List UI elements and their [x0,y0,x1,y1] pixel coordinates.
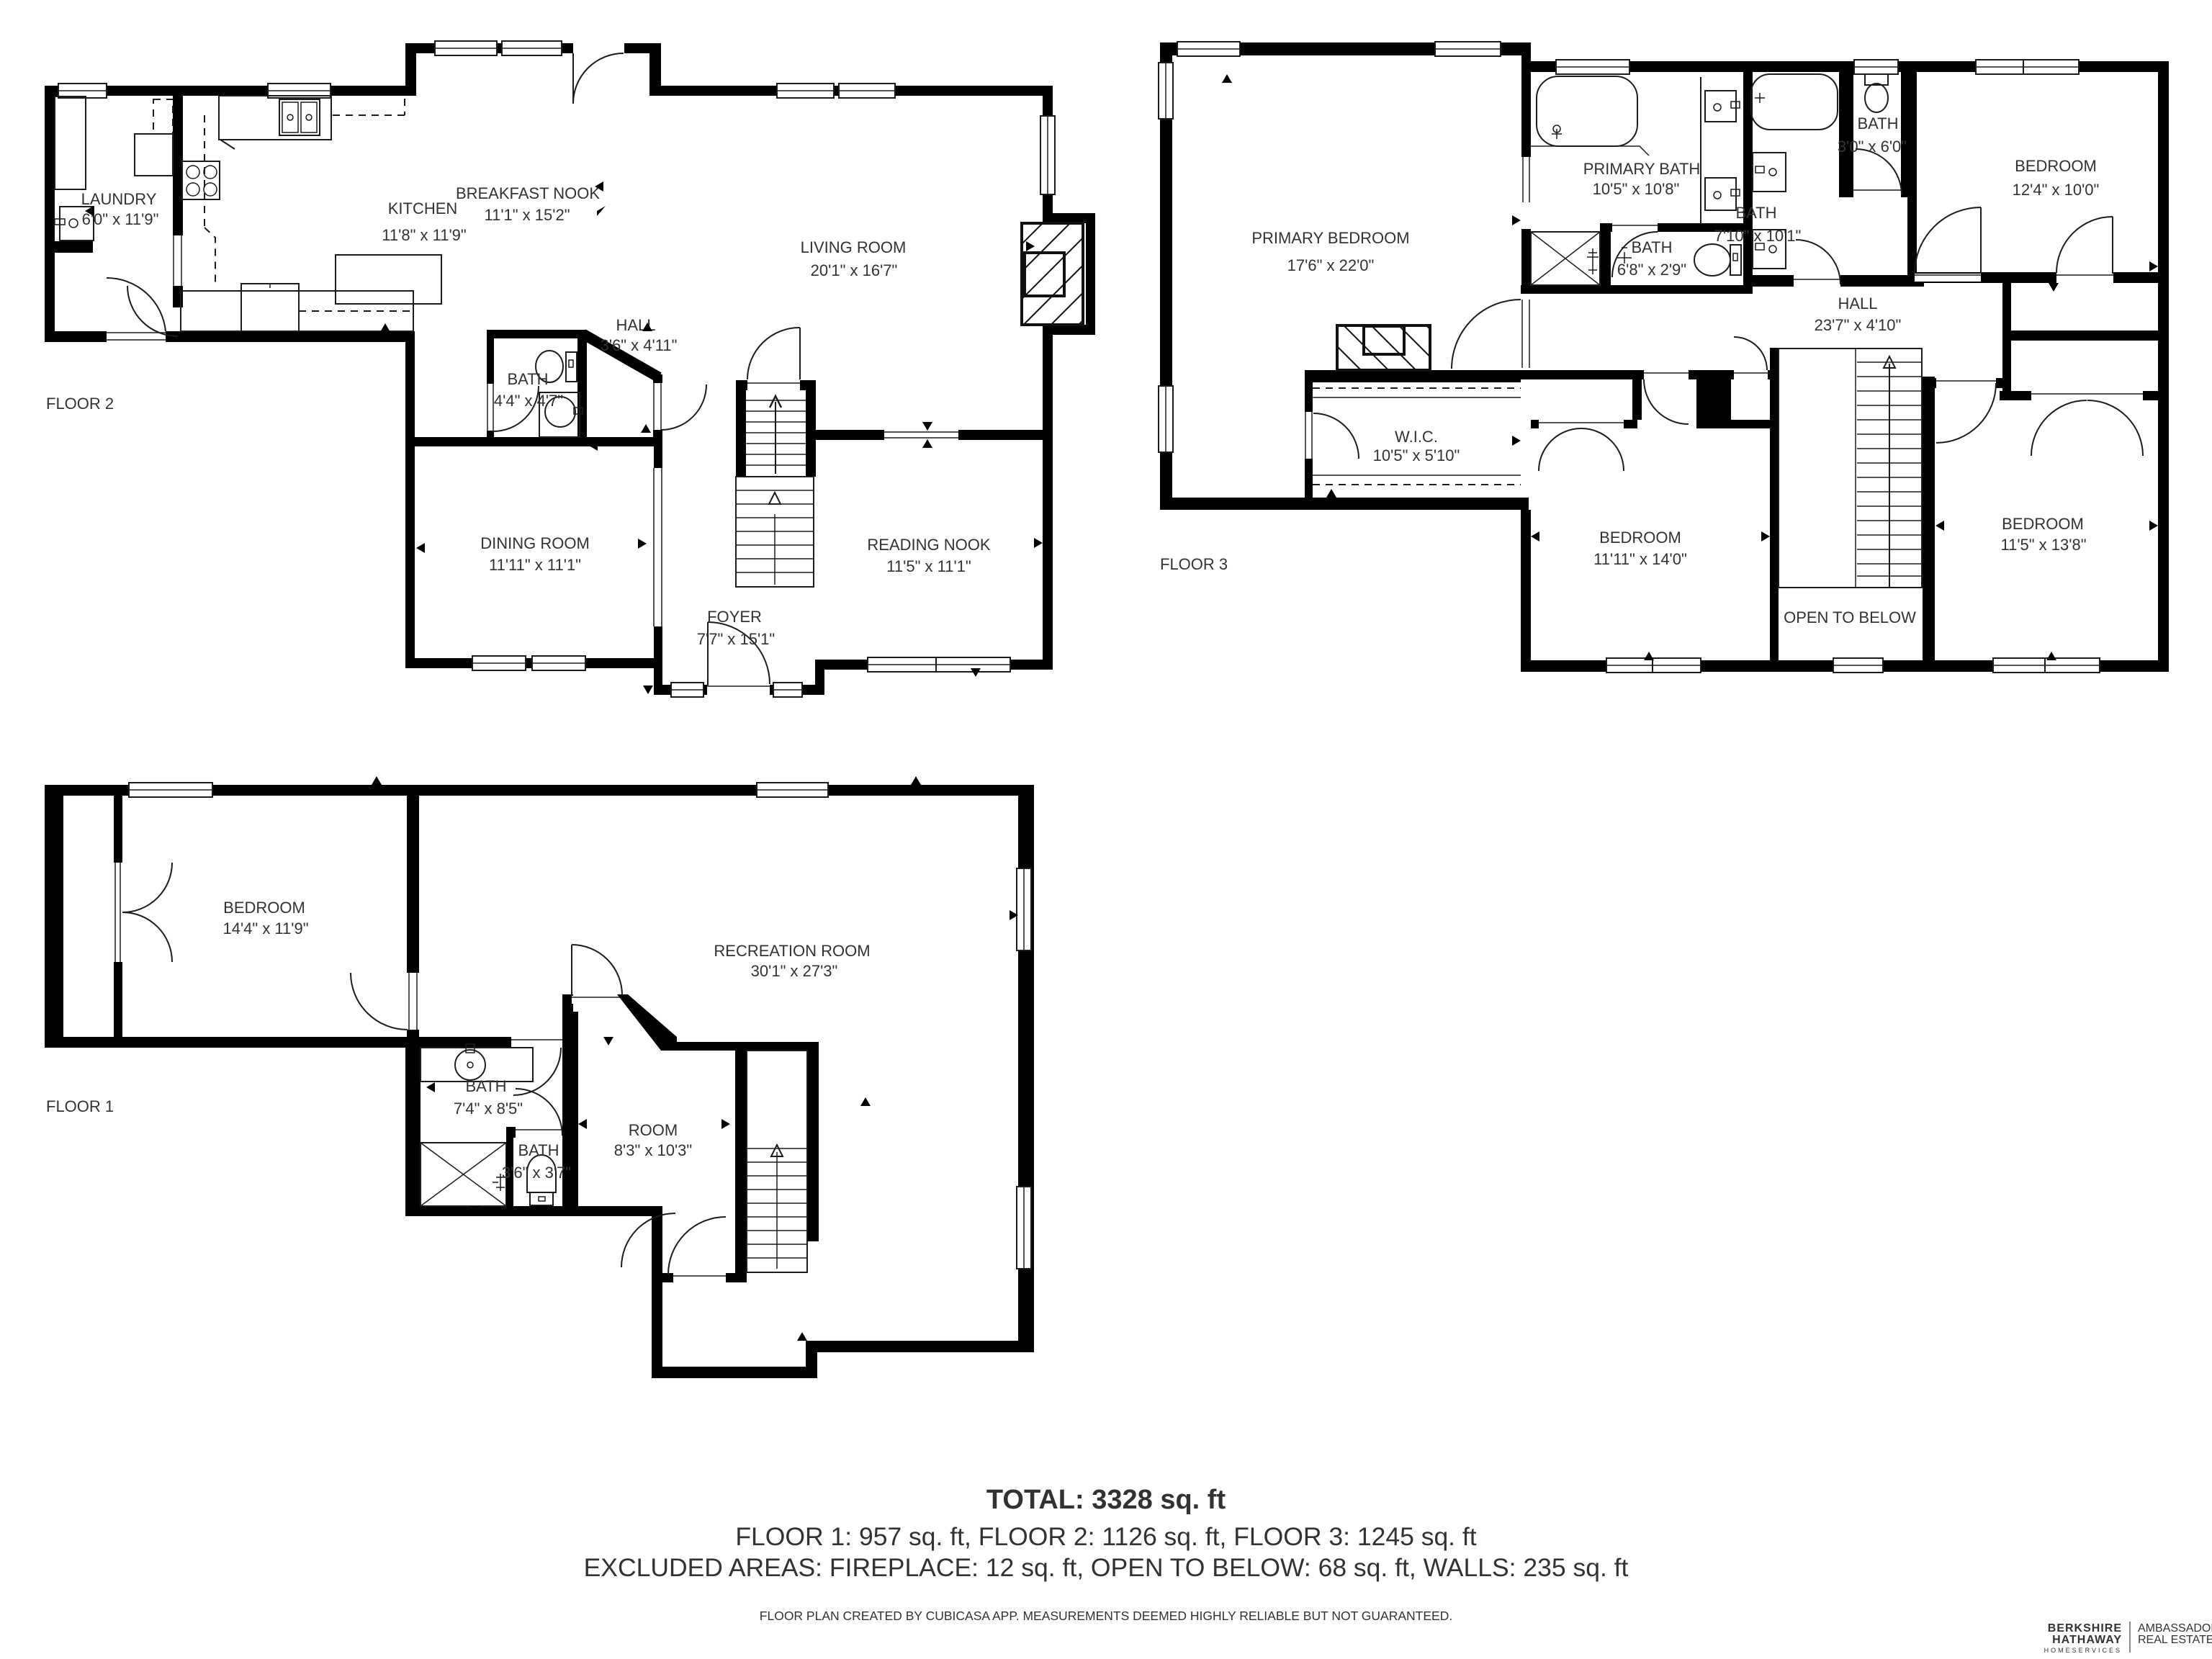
svg-text:3'6" x 4'11": 3'6" x 4'11" [601,336,678,354]
svg-text:PRIMARY BEDROOM: PRIMARY BEDROOM [1251,229,1409,247]
svg-text:BREAKFAST NOOK: BREAKFAST NOOK [456,184,600,202]
svg-text:11'5" x 11'1": 11'5" x 11'1" [886,557,971,575]
svg-text:FLOOR 1: FLOOR 1 [46,1097,114,1115]
svg-text:RECREATION ROOM: RECREATION ROOM [714,942,870,960]
svg-text:3'0" x 6'0": 3'0" x 6'0" [1838,138,1907,156]
svg-text:FLOOR PLAN CREATED BY CUBICASA: FLOOR PLAN CREATED BY CUBICASA APP. MEAS… [760,1609,1452,1623]
svg-text:23'7" x 4'10": 23'7" x 4'10" [1815,316,1902,334]
svg-text:BATH: BATH [465,1077,506,1095]
svg-text:11'11" x 14'0": 11'11" x 14'0" [1593,550,1687,568]
svg-text:20'1" x 16'7": 20'1" x 16'7" [811,261,898,279]
svg-text:7'7" x 15'1": 7'7" x 15'1" [697,630,775,648]
svg-text:HATHAWAY: HATHAWAY [2052,1634,2122,1646]
svg-text:BATH: BATH [507,370,548,388]
svg-text:HOMESERVICES: HOMESERVICES [2044,1647,2122,1654]
svg-text:W.I.C.: W.I.C. [1395,428,1438,446]
svg-text:BEDROOM: BEDROOM [2002,515,2084,533]
svg-text:7'4" x 8'5": 7'4" x 8'5" [454,1100,523,1118]
svg-text:3'6" x 3'7": 3'6" x 3'7" [502,1164,571,1182]
svg-text:LAUNDRY: LAUNDRY [81,190,157,208]
svg-text:10'5" x 10'8": 10'5" x 10'8" [1593,180,1680,198]
svg-text:BATH: BATH [1735,204,1776,222]
svg-text:BATH: BATH [1857,114,1898,132]
svg-text:AMBASSADOR: AMBASSADOR [2138,1622,2212,1635]
svg-text:11'11" x 11'1": 11'11" x 11'1" [489,556,581,574]
svg-text:REAL ESTATE: REAL ESTATE [2138,1634,2212,1646]
svg-text:BEDROOM: BEDROOM [2015,157,2097,175]
svg-text:HALL: HALL [1838,295,1877,313]
svg-text:TOTAL: 3328 sq. ft: TOTAL: 3328 sq. ft [986,1485,1226,1515]
svg-text:KITCHEN: KITCHEN [388,199,458,217]
svg-text:EXCLUDED AREAS: FIREPLACE: 12: EXCLUDED AREAS: FIREPLACE: 12 sq. ft, OP… [584,1553,1629,1582]
svg-text:OPEN TO BELOW: OPEN TO BELOW [1784,608,1916,626]
svg-text:ROOM: ROOM [629,1121,678,1139]
svg-text:17'6" x 22'0": 17'6" x 22'0" [1287,256,1375,274]
svg-text:BEDROOM: BEDROOM [223,899,305,917]
svg-text:4'4" x 4'7": 4'4" x 4'7" [494,392,563,410]
svg-text:BATH: BATH [1631,238,1672,256]
svg-text:LIVING ROOM: LIVING ROOM [801,238,907,256]
svg-text:BEDROOM: BEDROOM [1599,529,1681,547]
svg-text:FLOOR 3: FLOOR 3 [1160,555,1228,573]
svg-text:11'1" x 15'2": 11'1" x 15'2" [484,206,570,224]
svg-text:11'5" x 13'8": 11'5" x 13'8" [2000,536,2086,554]
svg-text:BATH: BATH [518,1141,559,1159]
svg-text:FOYER: FOYER [707,608,762,626]
svg-text:FLOOR 1: 957 sq. ft, FLOOR 2:: FLOOR 1: 957 sq. ft, FLOOR 2: 1126 sq. f… [735,1522,1476,1551]
svg-text:8'3" x 10'3": 8'3" x 10'3" [614,1141,692,1159]
svg-text:FLOOR 2: FLOOR 2 [46,395,114,413]
svg-text:12'4" x 10'0": 12'4" x 10'0" [2013,181,2100,199]
svg-text:HALL: HALL [616,316,655,334]
svg-text:7'10" x 10'1": 7'10" x 10'1" [1714,227,1802,245]
svg-text:10'5" x 5'10": 10'5" x 5'10" [1373,446,1460,464]
svg-text:11'8" x 11'9": 11'8" x 11'9" [382,226,466,244]
svg-text:READING NOOK: READING NOOK [867,536,990,554]
svg-text:BERKSHIRE: BERKSHIRE [2048,1622,2122,1635]
svg-text:PRIMARY BATH: PRIMARY BATH [1583,160,1701,178]
svg-text:30'1" x 27'3": 30'1" x 27'3" [751,962,838,980]
svg-text:6'8" x 2'9": 6'8" x 2'9" [1617,261,1686,279]
svg-text:14'4" x 11'9": 14'4" x 11'9" [222,920,308,938]
svg-text:DINING ROOM: DINING ROOM [480,534,590,552]
